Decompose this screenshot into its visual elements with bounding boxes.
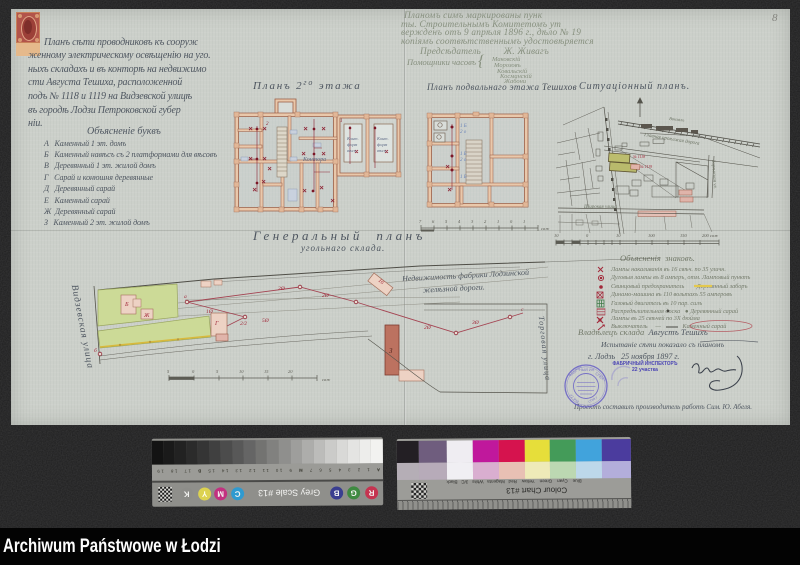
svg-text:Г: Г bbox=[214, 321, 219, 327]
svg-text:Б: Б bbox=[124, 302, 129, 308]
svg-text:№ 1119: № 1119 bbox=[639, 164, 652, 169]
svg-text:200 саж: 200 саж bbox=[702, 233, 719, 238]
svg-text:1: 1 bbox=[497, 219, 499, 224]
svg-text:2Ø: 2Ø bbox=[322, 293, 330, 299]
svg-text:Ж: Ж bbox=[143, 313, 150, 319]
svg-text:Конт.: Конт. bbox=[346, 136, 359, 141]
svg-text:4: 4 bbox=[458, 219, 461, 224]
svg-text:1 Б: 1 Б bbox=[460, 175, 467, 180]
svg-text:1: 1 bbox=[340, 119, 343, 124]
svg-text:2 о: 2 о bbox=[460, 130, 467, 135]
svg-text:10: 10 bbox=[554, 233, 559, 238]
svg-text:7: 7 bbox=[419, 219, 422, 224]
svg-text:5: 5 bbox=[167, 369, 170, 374]
svg-text:150: 150 bbox=[680, 233, 688, 238]
svg-text:1 Б: 1 Б bbox=[460, 152, 467, 157]
svg-text:стка г: стка г bbox=[588, 395, 599, 404]
svg-text:2/2: 2/2 bbox=[240, 321, 247, 327]
svg-text:1Ø: 1Ø bbox=[206, 309, 214, 315]
svg-text:а: а bbox=[184, 294, 187, 300]
svg-text:0: 0 bbox=[192, 369, 195, 374]
svg-text:10: 10 bbox=[239, 369, 244, 374]
svg-text:№ 1118: № 1118 bbox=[632, 154, 645, 159]
svg-text:3: 3 bbox=[471, 219, 474, 224]
svg-text:15: 15 bbox=[264, 369, 269, 374]
svg-text:5: 5 bbox=[445, 219, 448, 224]
svg-text:саж: саж bbox=[541, 226, 550, 231]
svg-text:0: 0 bbox=[510, 219, 513, 224]
svg-text:2 о: 2 о bbox=[460, 158, 467, 163]
svg-text:СПЕКТ: СПЕКТ bbox=[594, 372, 607, 383]
svg-text:2Ø: 2Ø bbox=[278, 286, 286, 292]
svg-text:З: З bbox=[389, 347, 393, 355]
svg-text:Зарѣвская ул.: Зарѣвская ул. bbox=[710, 160, 717, 189]
svg-text:НЫЙ ИН: НЫЙ ИН bbox=[579, 368, 595, 372]
svg-text:2Ø: 2Ø bbox=[424, 325, 432, 331]
svg-text:вѣсъ: вѣсъ bbox=[377, 148, 387, 153]
svg-text:вѣсъ: вѣсъ bbox=[347, 148, 357, 153]
svg-text:саж: саж bbox=[322, 377, 331, 382]
svg-text:6: 6 bbox=[432, 219, 435, 224]
svg-text:Широкая улица: Широкая улица bbox=[583, 205, 617, 210]
svg-text:100: 100 bbox=[648, 233, 656, 238]
svg-text:2: 2 bbox=[484, 219, 487, 224]
svg-text:5: 5 bbox=[216, 369, 219, 374]
svg-text:Вокзалъ: Вокзалъ bbox=[669, 116, 685, 123]
svg-text:б: б bbox=[94, 347, 97, 354]
svg-text:10: 10 bbox=[616, 233, 621, 238]
svg-text:форм: форм bbox=[377, 142, 387, 147]
svg-text:5Ø: 5Ø bbox=[262, 318, 270, 324]
svg-text:0: 0 bbox=[586, 233, 589, 238]
svg-text:Контора: Контора bbox=[302, 157, 326, 163]
svg-text:1 Б: 1 Б bbox=[460, 124, 467, 129]
svg-text:3Ø: 3Ø bbox=[471, 320, 480, 326]
svg-text:Главная проѣзжая дорога: Главная проѣзжая дорога bbox=[643, 133, 700, 147]
svg-text:20: 20 bbox=[288, 369, 293, 374]
svg-text:1: 1 bbox=[523, 219, 525, 224]
svg-text:форм: форм bbox=[347, 142, 357, 147]
svg-text:Конт.: Конт. bbox=[376, 136, 389, 141]
